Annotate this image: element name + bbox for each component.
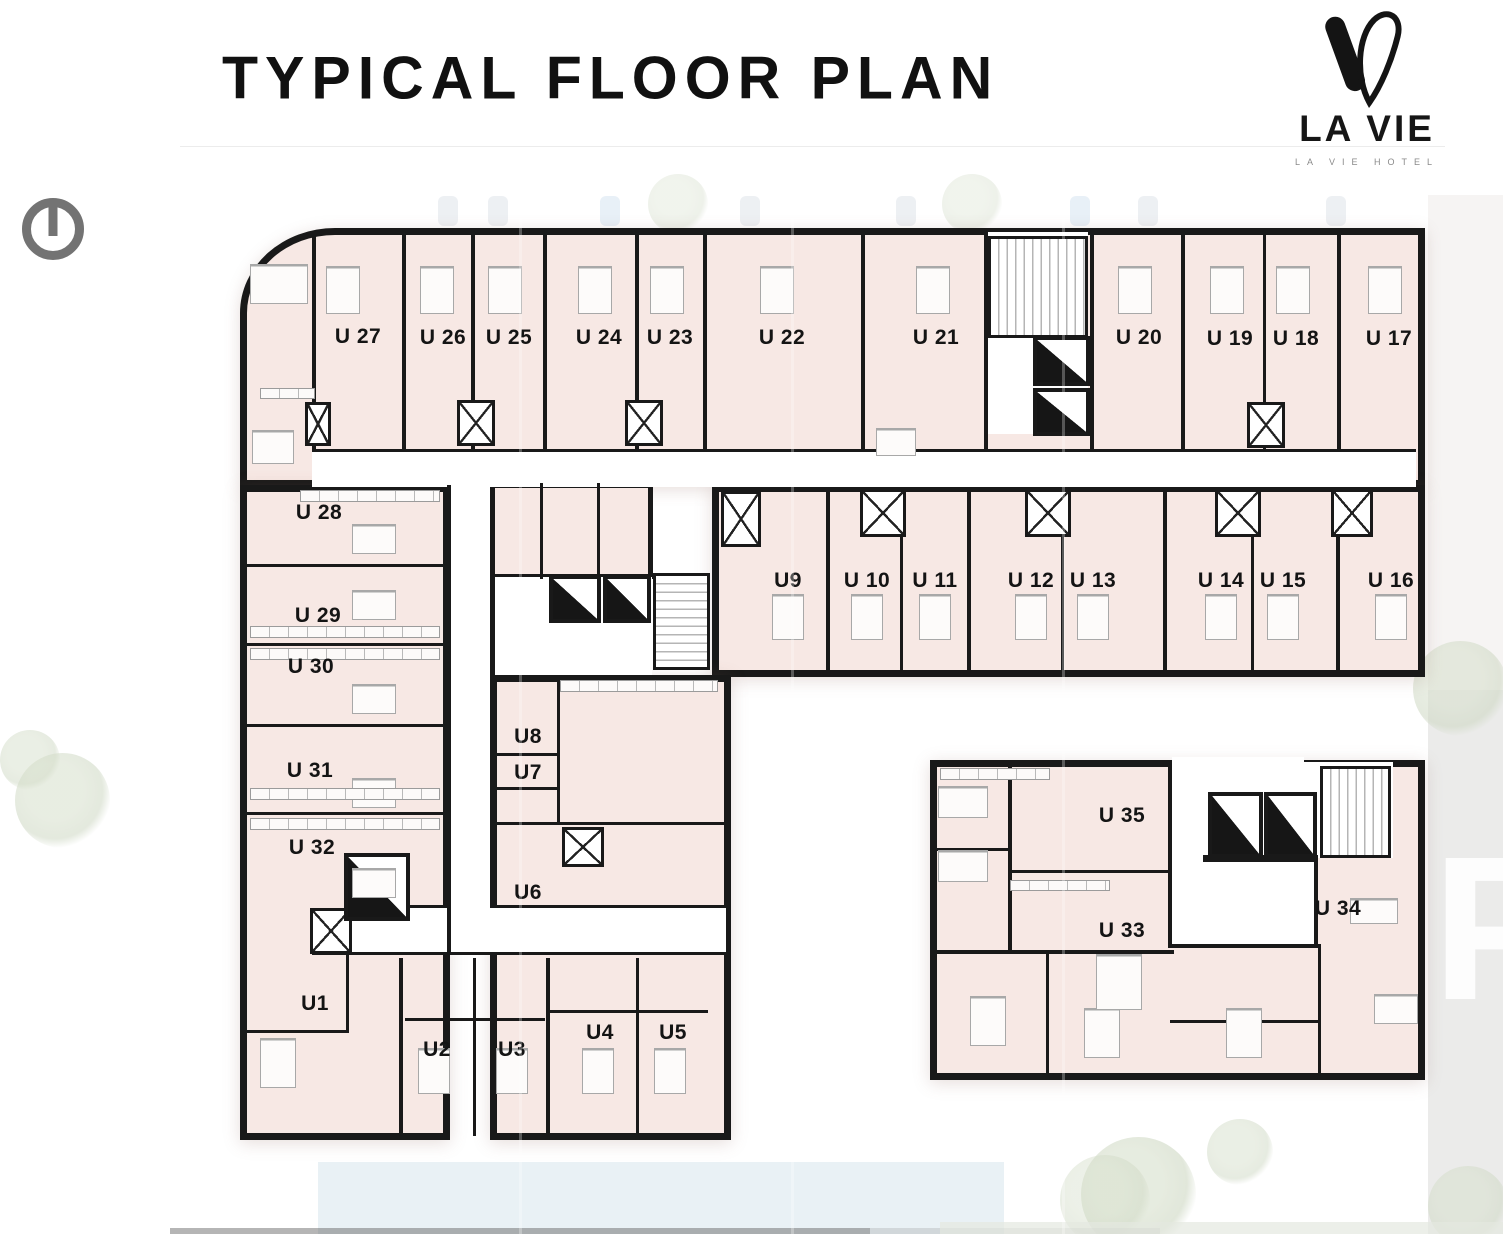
ground-edge xyxy=(170,1228,870,1234)
interior-wall xyxy=(492,787,557,790)
kitchen-fixtures xyxy=(250,818,440,830)
interior-wall xyxy=(244,564,447,567)
unit-label-U1: U1 xyxy=(301,992,329,1016)
unit-label-U7: U7 xyxy=(514,761,542,785)
unit-label-U29: U 29 xyxy=(295,604,341,628)
interior-wall xyxy=(492,753,557,756)
unit-label-U32: U 32 xyxy=(289,836,335,860)
elevator-shaft xyxy=(1264,792,1317,858)
bed-furniture xyxy=(650,266,684,314)
unit-label-U23: U 23 xyxy=(647,326,693,350)
interior-wall xyxy=(447,485,451,955)
bed-furniture xyxy=(938,850,988,882)
shaft-symbol xyxy=(1331,489,1373,537)
parked-car-icon xyxy=(1138,196,1158,226)
bed-furniture xyxy=(1205,594,1237,640)
bed-furniture xyxy=(1077,594,1109,640)
tree xyxy=(1413,641,1503,736)
elevator-shaft xyxy=(1033,336,1090,386)
building-core-block xyxy=(490,483,653,579)
bed-furniture xyxy=(851,594,883,640)
tree xyxy=(942,174,1002,234)
bed-furniture xyxy=(1276,266,1310,314)
parked-car-icon xyxy=(600,196,620,226)
floor-plan-page: TYPICAL FLOOR PLAN LA VIE LA VIE HOTEL P… xyxy=(0,0,1503,1234)
kitchen-fixtures xyxy=(940,768,1050,780)
interior-wall xyxy=(1181,232,1185,452)
interior-wall xyxy=(244,1030,348,1033)
unit-label-U2: U2 xyxy=(423,1038,451,1062)
bed-furniture xyxy=(1210,266,1244,314)
unit-label-U11: U 11 xyxy=(912,569,957,593)
unit-label-U25: U 25 xyxy=(486,326,532,350)
shaft-symbol xyxy=(1247,402,1285,448)
bed-furniture xyxy=(352,524,396,554)
interior-wall xyxy=(405,1018,545,1021)
bed-furniture xyxy=(970,996,1006,1046)
interior-wall xyxy=(402,232,406,452)
interior-wall xyxy=(826,489,830,671)
bed-furniture xyxy=(938,786,988,818)
unit-label-U34: U 34 xyxy=(1315,897,1361,921)
unit-label-U13: U 13 xyxy=(1070,569,1116,593)
interior-wall xyxy=(1318,944,1321,1076)
kitchen-fixtures xyxy=(1010,880,1110,891)
interior-wall xyxy=(1163,489,1167,671)
unit-label-U24: U 24 xyxy=(576,326,622,350)
bed-furniture xyxy=(326,266,360,314)
shaft-symbol xyxy=(457,400,495,446)
unit-label-U9: U9 xyxy=(774,569,802,593)
bed-furniture xyxy=(919,594,951,640)
interior-wall xyxy=(1168,944,1318,948)
bed-furniture xyxy=(1226,1008,1262,1058)
bed-furniture xyxy=(252,430,294,464)
unit-label-U3: U3 xyxy=(498,1038,526,1062)
staircase xyxy=(1320,766,1391,858)
unit-label-U21: U 21 xyxy=(913,326,959,350)
kitchen-fixtures xyxy=(250,626,440,638)
shaft-symbol xyxy=(860,489,906,537)
interior-wall xyxy=(346,955,349,1033)
bed-furniture xyxy=(352,590,396,620)
background-panel-upper xyxy=(1428,195,1503,690)
bed-furniture xyxy=(1084,1008,1120,1058)
unit-label-U10: U 10 xyxy=(844,569,890,593)
unit-label-U35: U 35 xyxy=(1099,804,1145,828)
interior-wall xyxy=(492,822,727,825)
elevator-shaft xyxy=(603,575,651,623)
bed-furniture xyxy=(772,594,804,640)
interior-wall xyxy=(244,643,447,646)
interior-wall xyxy=(1168,766,1172,944)
parked-car-icon xyxy=(1326,196,1346,226)
unit-label-U8: U8 xyxy=(514,725,542,749)
la-vie-v-mark-icon xyxy=(1308,8,1426,112)
interior-wall xyxy=(1337,232,1341,452)
staircase xyxy=(988,236,1088,338)
parked-car-icon xyxy=(438,196,458,226)
unit-label-U30: U 30 xyxy=(288,655,334,679)
interior-wall xyxy=(1046,953,1049,1078)
elevator-shaft xyxy=(1208,792,1263,858)
interior-wall xyxy=(636,958,639,1136)
bed-furniture xyxy=(1015,594,1047,640)
kitchen-fixtures xyxy=(250,788,440,800)
interior-wall xyxy=(494,905,726,908)
swimming-pool xyxy=(318,1162,1004,1234)
parked-car-icon xyxy=(1070,196,1090,226)
north-indicator-icon xyxy=(22,198,84,260)
unit-label-U27: U 27 xyxy=(335,325,381,349)
shaft-symbol xyxy=(1025,489,1071,537)
unit-label-U14: U 14 xyxy=(1198,569,1244,593)
shaft-symbol xyxy=(721,491,761,547)
bed-furniture xyxy=(420,266,454,314)
corridor xyxy=(1172,757,1304,769)
unit-label-U22: U 22 xyxy=(759,326,805,350)
unit-label-U16: U 16 xyxy=(1368,569,1414,593)
unit-label-U33: U 33 xyxy=(1099,919,1145,943)
unit-label-U26: U 26 xyxy=(420,326,466,350)
watermark-letter: P xyxy=(1432,826,1503,1031)
interior-wall xyxy=(546,958,550,1136)
parked-car-icon xyxy=(740,196,760,226)
unit-label-U12: U 12 xyxy=(1008,569,1054,593)
bed-furniture xyxy=(260,1038,296,1088)
interior-wall xyxy=(312,952,726,955)
corridor xyxy=(451,480,490,955)
bed-furniture xyxy=(352,684,396,714)
unit-label-U15: U 15 xyxy=(1260,569,1306,593)
kitchen-fixtures xyxy=(250,648,440,660)
elevator-shaft xyxy=(549,575,601,623)
parked-car-icon xyxy=(488,196,508,226)
shaft-symbol xyxy=(625,400,663,446)
unit-label-U4: U4 xyxy=(586,1021,614,1045)
bed-furniture xyxy=(760,266,794,314)
unit-label-U20: U 20 xyxy=(1116,326,1162,350)
interior-wall xyxy=(967,489,971,671)
page-title: TYPICAL FLOOR PLAN xyxy=(222,43,999,112)
unit-label-U31: U 31 xyxy=(287,759,333,783)
interior-wall xyxy=(557,675,560,825)
parked-car-icon xyxy=(896,196,916,226)
brand-logo: LA VIE LA VIE HOTEL xyxy=(1282,8,1452,167)
bed-furniture xyxy=(352,868,396,898)
bed-furniture xyxy=(876,428,916,456)
unit-label-U18: U 18 xyxy=(1273,327,1319,351)
interior-wall xyxy=(1008,764,1012,954)
shaft-symbol xyxy=(1215,489,1261,537)
bed-furniture xyxy=(1118,266,1152,314)
bed-furniture xyxy=(916,266,950,314)
interior-wall xyxy=(861,232,865,452)
kitchen-fixtures xyxy=(560,680,718,692)
interior-wall xyxy=(1008,870,1170,873)
tree xyxy=(648,174,708,234)
unit-label-U5: U5 xyxy=(659,1021,687,1045)
interior-wall xyxy=(543,232,547,452)
interior-wall xyxy=(473,958,476,1136)
bed-furniture xyxy=(1368,266,1402,314)
tree xyxy=(1207,1119,1273,1185)
interior-wall xyxy=(312,449,1416,452)
interior-wall xyxy=(244,812,447,815)
elevator-shaft xyxy=(1033,388,1090,436)
unit-label-U6: U6 xyxy=(514,881,542,905)
bed-furniture xyxy=(578,266,612,314)
bed-furniture xyxy=(1267,594,1299,640)
tree xyxy=(15,753,110,848)
bed-furniture xyxy=(582,1048,614,1094)
interior-wall xyxy=(490,577,495,675)
interior-wall xyxy=(550,1010,708,1013)
shaft-symbol xyxy=(305,402,331,446)
unit-label-U19: U 19 xyxy=(1207,327,1253,351)
interior-wall xyxy=(244,724,447,727)
bed-furniture xyxy=(488,266,522,314)
staircase xyxy=(653,573,710,670)
bed-furniture xyxy=(250,264,308,304)
unit-label-U17: U 17 xyxy=(1366,327,1412,351)
interior-wall xyxy=(597,483,600,579)
bed-furniture xyxy=(1375,594,1407,640)
interior-wall xyxy=(1090,232,1094,452)
interior-wall xyxy=(540,483,543,579)
shaft-symbol xyxy=(562,827,604,867)
bed-furniture xyxy=(1096,954,1142,1010)
lawn-strip xyxy=(940,1222,1503,1234)
bed-furniture xyxy=(1374,994,1418,1024)
interior-wall xyxy=(399,958,403,1136)
unit-label-U28: U 28 xyxy=(296,501,342,525)
header-divider xyxy=(180,146,1445,147)
bed-furniture xyxy=(654,1048,686,1094)
brand-name: LA VIE xyxy=(1282,108,1452,150)
kitchen-fixtures xyxy=(260,388,315,399)
brand-tagline: LA VIE HOTEL xyxy=(1282,157,1452,167)
interior-wall xyxy=(703,232,707,452)
